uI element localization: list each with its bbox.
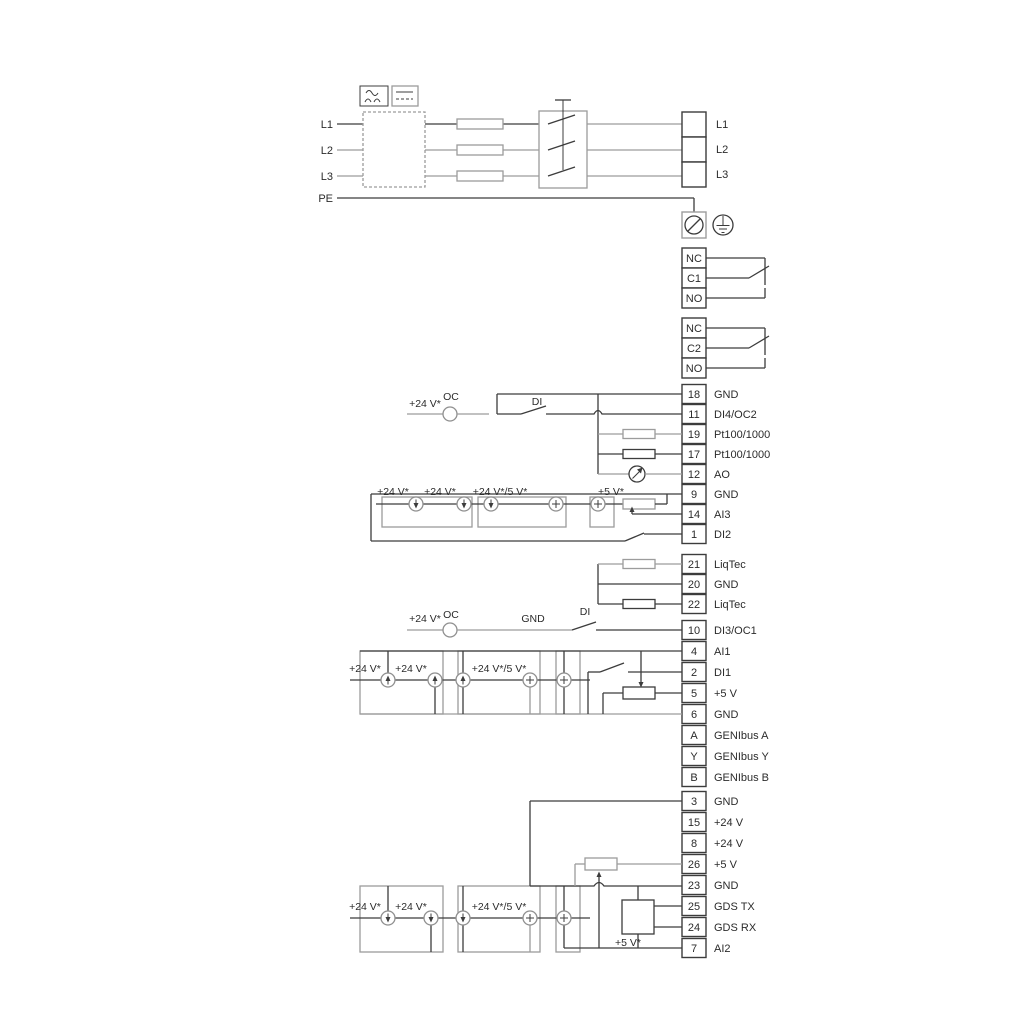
- ac-symbol-icon: [360, 86, 388, 106]
- terminal-number: 10: [688, 625, 700, 637]
- current-source-icon: [457, 497, 471, 511]
- liqtec-section: 21 20 22 LiqTec GND LiqTec: [598, 555, 746, 614]
- terminal-label: LiqTec: [714, 559, 746, 571]
- ai1-option-block: +24 V* +24 V* +24 V*/5 V*: [349, 651, 682, 714]
- terminal-label: AO: [714, 469, 730, 481]
- terminal-label: +24 V: [714, 838, 744, 850]
- voltage-annotation: +24 V*: [395, 901, 427, 913]
- terminal-number: 11: [688, 409, 699, 421]
- voltage-annotation: +24 V*/5 V*: [472, 663, 527, 675]
- terminal-label: DI3/OC1: [714, 625, 757, 637]
- rfi-filter-box: [363, 112, 425, 187]
- voltage-annotation: +24 V*: [377, 486, 409, 498]
- terminal-label: GDS RX: [714, 922, 757, 934]
- terminal-label: L3: [716, 169, 728, 181]
- relay-1-section: NC C1 NO: [682, 248, 769, 308]
- liqtec-wiring: [598, 560, 682, 609]
- current-source-icon: [428, 673, 442, 687]
- power-input-label: L1: [321, 119, 333, 131]
- potentiometer: [623, 499, 655, 509]
- terminal-number: 25: [688, 901, 700, 913]
- terminal-number: NC: [686, 323, 702, 335]
- resistor: [623, 430, 655, 439]
- terminal-number: 23: [688, 880, 700, 892]
- earth-ground-icon: [713, 215, 733, 235]
- terminal-number: 18: [688, 389, 700, 401]
- voltage-annotation: +24 V*/5 V*: [473, 486, 528, 498]
- di3-oc1-circuit: +24 V* OC GND DI: [407, 606, 682, 637]
- terminal-label: AI3: [714, 509, 731, 521]
- terminal-label: +5 V: [714, 688, 738, 700]
- resistor: [623, 560, 655, 569]
- ai3-option-block: +24 V* +24 V* +24 V*/5 V* +5 V*: [371, 486, 682, 541]
- current-source-icon: [456, 673, 470, 687]
- terminal-number: 15: [688, 817, 700, 829]
- voltage-annotation: +24 V*: [424, 486, 456, 498]
- terminal-number: 19: [688, 429, 700, 441]
- voltage-source-icon: [591, 497, 605, 511]
- voltage-annotation: +24 V*: [395, 663, 427, 675]
- voltage-source-icon: [523, 673, 537, 687]
- current-source-icon: [424, 911, 438, 925]
- terminal-number: Y: [690, 751, 698, 763]
- terminal-number: 1: [691, 529, 697, 541]
- terminal-number: NC: [686, 253, 702, 265]
- current-source-icon: [456, 911, 470, 925]
- terminal-label: LiqTec: [714, 599, 746, 611]
- wiring-diagram-svg: L1 L2 L3 PE: [0, 0, 1024, 1024]
- ai2-gds-option-block: +5 V*: [349, 801, 682, 952]
- relay-contact: [706, 328, 769, 368]
- terminal-strip-b: 10 4 2 5 6 A Y B DI3/OC1 AI1 DI1 +5 V GN…: [682, 621, 769, 787]
- di-annotation: DI: [532, 396, 543, 408]
- terminal-label: L1: [716, 119, 728, 131]
- terminal-number: 3: [691, 796, 697, 808]
- relay-contact: [706, 258, 769, 298]
- terminal-label: GND: [714, 579, 739, 591]
- dc-symbol-icon: [392, 86, 418, 106]
- voltage-annotation: +5 V*: [615, 937, 641, 949]
- terminal-number: 21: [688, 559, 700, 571]
- current-source-icon: [381, 911, 395, 925]
- voltage-annotation: +24 V*/5 V*: [472, 901, 527, 913]
- terminal-cell: [682, 137, 706, 162]
- wiring-diagram-page: L1 L2 L3 PE: [0, 0, 1024, 1024]
- terminal-label: DI1: [714, 667, 731, 679]
- terminal-label: GDS TX: [714, 901, 755, 913]
- terminal-number: 8: [691, 838, 697, 850]
- oc-output-icon: [443, 623, 457, 637]
- terminal-label: DI4/OC2: [714, 409, 757, 421]
- terminal-label: +24 V: [714, 817, 744, 829]
- terminal-label: +5 V: [714, 859, 738, 871]
- voltage-annotation: +5 V*: [598, 486, 624, 498]
- voltage-source-icon: [523, 911, 537, 925]
- wiper-arrow: [597, 872, 602, 878]
- terminal-label: Pt100/1000: [714, 429, 770, 441]
- oc-output-icon: [443, 407, 457, 421]
- terminal-label: L2: [716, 144, 728, 156]
- gnd-annotation: GND: [521, 613, 545, 625]
- mains-wiring: [337, 124, 694, 212]
- terminal-number: C2: [687, 343, 701, 355]
- voltage-annotation: +24 V*: [349, 901, 381, 913]
- di-annotation: DI: [580, 606, 591, 618]
- fuse: [457, 119, 503, 129]
- terminal-label: GND: [714, 709, 739, 721]
- terminal-number: 2: [691, 667, 697, 679]
- terminal-label: GND: [714, 389, 739, 401]
- terminal-number: 22: [688, 599, 700, 611]
- terminal-strip-c: 3 15 8 26 23 25 24 7 GND +24 V +24 V +5 …: [682, 792, 757, 958]
- current-source-icon: [484, 497, 498, 511]
- power-input-label: L3: [321, 171, 333, 183]
- potentiometer: [585, 858, 617, 870]
- terminal-number: 7: [691, 943, 697, 955]
- terminal-number: B: [690, 772, 697, 784]
- voltage-source-icon: [557, 911, 571, 925]
- resistor: [623, 450, 655, 459]
- fuse: [457, 171, 503, 181]
- disconnect-switch: [539, 100, 587, 188]
- oc-annotation: OC: [443, 391, 459, 403]
- terminal-label: GND: [714, 796, 739, 808]
- voltage-annotation: +24 V*: [409, 398, 441, 410]
- di-switch: [572, 622, 596, 630]
- screw-terminal-icon: [682, 212, 706, 238]
- terminal-number: NO: [686, 363, 703, 375]
- analog-meter-icon: [629, 466, 645, 482]
- terminal-number: 14: [688, 509, 700, 521]
- terminal-label: GENIbus Y: [714, 751, 769, 763]
- terminal-label: GENIbus B: [714, 772, 769, 784]
- terminal-label: GENIbus A: [714, 730, 769, 742]
- voltage-annotation: +24 V*: [409, 613, 441, 625]
- relay-2-section: NC C2 NO: [682, 318, 769, 378]
- terminal-number: 9: [691, 489, 697, 501]
- oc-annotation: OC: [443, 609, 459, 621]
- resistor: [623, 600, 655, 609]
- terminal-label: AI2: [714, 943, 731, 955]
- di-switch: [600, 663, 624, 672]
- current-source-icon: [409, 497, 423, 511]
- voltage-annotation: +24 V*: [349, 663, 381, 675]
- terminal-label: Pt100/1000: [714, 449, 770, 461]
- di4-oc2-circuit: +24 V* OC DI: [407, 391, 682, 482]
- terminal-number: 17: [688, 449, 700, 461]
- terminal-number: C1: [687, 273, 701, 285]
- potentiometer: [623, 687, 655, 699]
- power-input-label: PE: [318, 193, 333, 205]
- terminal-label: DI2: [714, 529, 731, 541]
- di-switch: [625, 533, 644, 541]
- terminal-number: 24: [688, 922, 700, 934]
- terminal-label: AI1: [714, 646, 731, 658]
- terminal-cell: [682, 112, 706, 137]
- terminal-number: NO: [686, 293, 703, 305]
- terminal-number: 20: [688, 579, 700, 591]
- power-input-label: L2: [321, 145, 333, 157]
- terminal-number: 4: [691, 646, 697, 658]
- terminal-number: 5: [691, 688, 697, 700]
- fuse: [457, 145, 503, 155]
- terminal-label: GND: [714, 880, 739, 892]
- current-source-icon: [381, 673, 395, 687]
- terminal-label: GND: [714, 489, 739, 501]
- terminal-cell: [682, 162, 706, 187]
- terminal-number: 6: [691, 709, 697, 721]
- voltage-source-icon: [557, 673, 571, 687]
- terminal-number: 12: [688, 469, 700, 481]
- mains-power-section: L1 L2 L3 PE: [318, 86, 733, 238]
- voltage-source-icon: [549, 497, 563, 511]
- terminal-number: A: [690, 730, 698, 742]
- terminal-strip-a: 18 11 19 17 12 9 14 1 GND DI4/OC2 Pt100/…: [682, 385, 770, 544]
- terminal-number: 26: [688, 859, 700, 871]
